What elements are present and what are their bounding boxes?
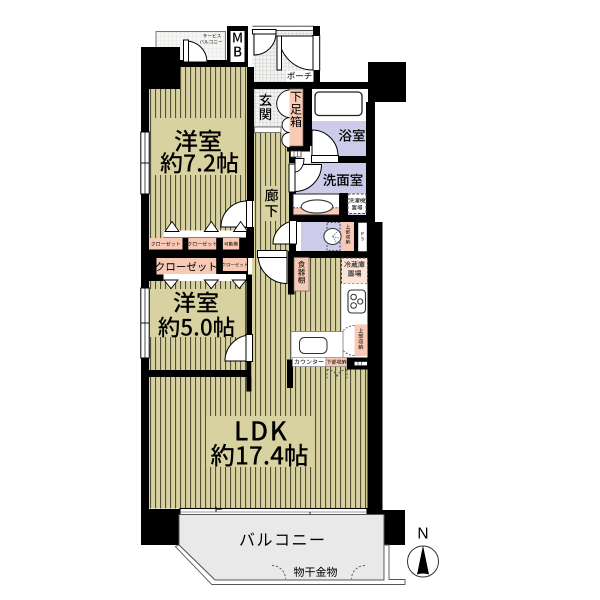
svg-text:N: N: [417, 526, 428, 543]
